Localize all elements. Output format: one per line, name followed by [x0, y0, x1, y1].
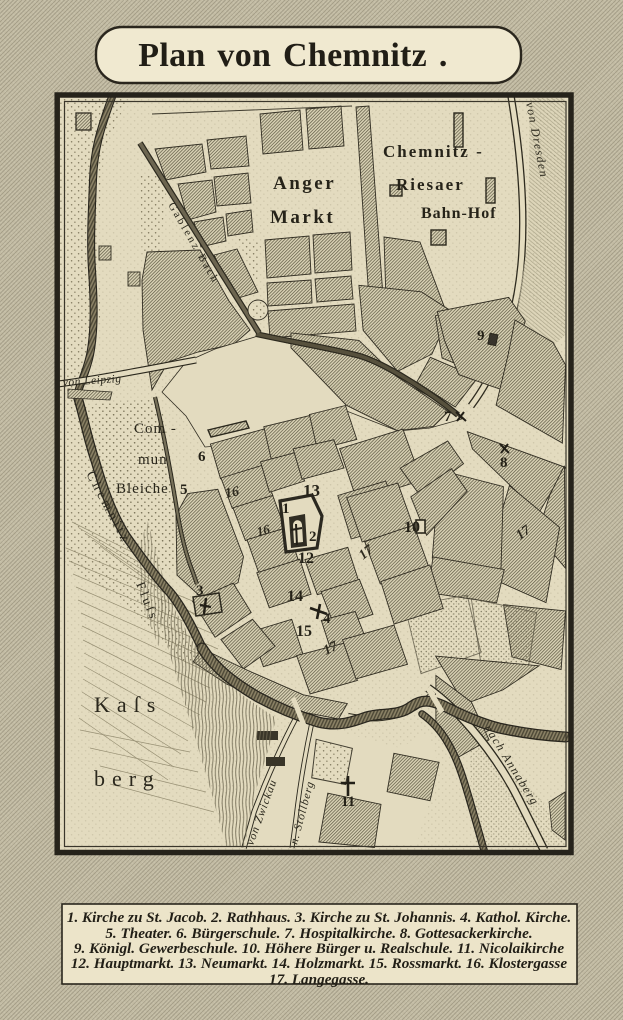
- svg-text:17. Langegasse.: 17. Langegasse.: [269, 971, 369, 988]
- svg-text:Plan von Chemnitz .: Plan von Chemnitz .: [138, 37, 447, 74]
- svg-text:1. Kirche zu St. Jacob. 2. Rat: 1. Kirche zu St. Jacob. 2. Rathhaus. 3. …: [67, 909, 571, 926]
- svg-text:12. Hauptmarkt. 13. Neumarkt.: 12. Hauptmarkt. 13. Neumarkt. 14. Holzma…: [71, 955, 567, 972]
